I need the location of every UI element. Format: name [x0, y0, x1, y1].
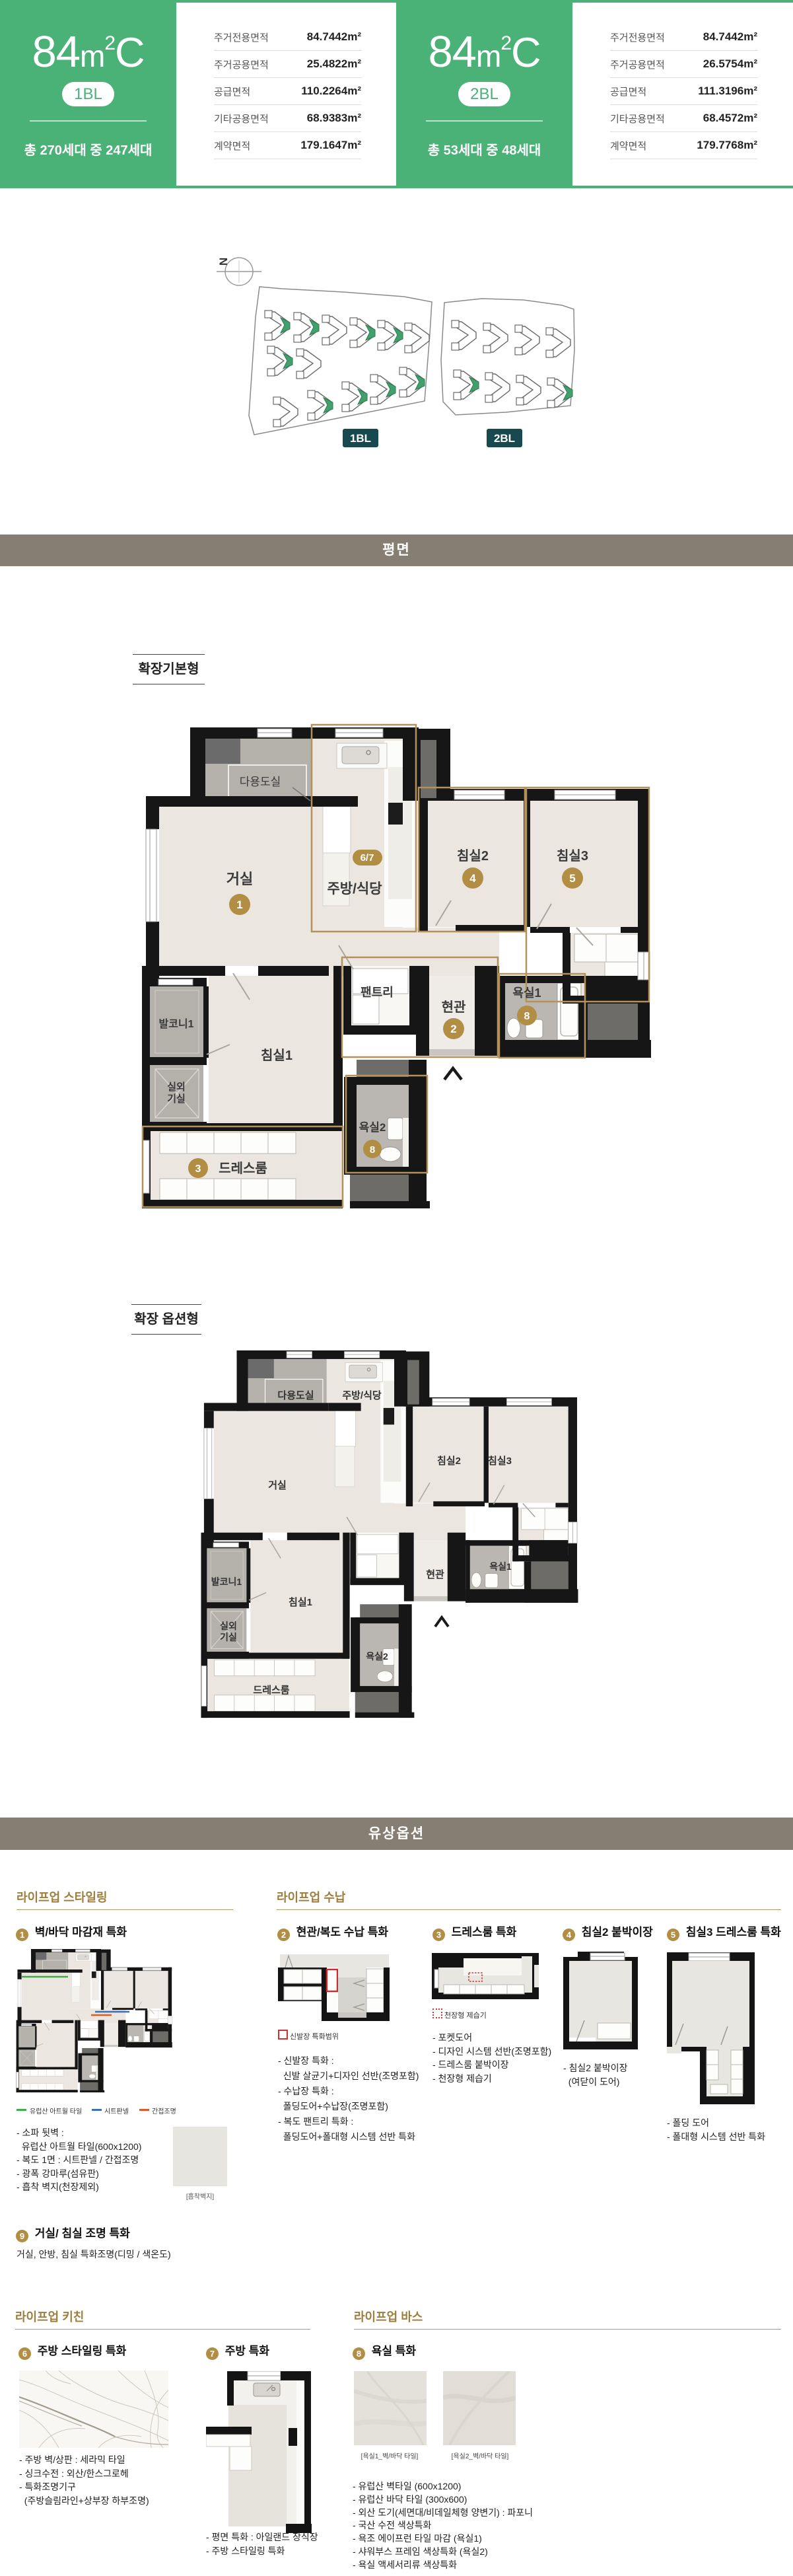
svg-text:5: 5 [569, 872, 575, 885]
svg-text:6/7: 6/7 [361, 852, 374, 864]
svg-text:침실3: 침실3 [557, 848, 588, 864]
svg-text:현관: 현관 [442, 1000, 466, 1015]
svg-text:3: 3 [195, 1163, 201, 1175]
svg-text:침실3: 침실3 [488, 1455, 512, 1467]
svg-text:현관: 현관 [426, 1569, 444, 1580]
svg-text:다용도실: 다용도실 [277, 1390, 314, 1401]
svg-text:1: 1 [236, 899, 242, 911]
svg-text:실외: 실외 [167, 1081, 186, 1093]
svg-text:기실: 기실 [220, 1632, 237, 1642]
svg-text:주방/식당: 주방/식당 [342, 1389, 382, 1401]
svg-text:침실2: 침실2 [457, 848, 489, 864]
svg-text:욕실1: 욕실1 [489, 1561, 512, 1572]
svg-text:발코니1: 발코니1 [158, 1018, 193, 1030]
svg-text:거실: 거실 [268, 1480, 287, 1491]
svg-text:드레스룸: 드레스룸 [253, 1685, 289, 1696]
svg-text:1BL: 1BL [350, 432, 371, 445]
svg-text:침실1: 침실1 [289, 1597, 312, 1608]
svg-text:욕실1: 욕실1 [512, 986, 541, 1000]
svg-text:욕실2: 욕실2 [359, 1121, 386, 1134]
svg-text:발코니1: 발코니1 [211, 1576, 242, 1587]
svg-text:8: 8 [370, 1144, 375, 1156]
svg-text:드레스룸: 드레스룸 [219, 1161, 267, 1176]
svg-text:기실: 기실 [167, 1093, 186, 1105]
svg-text:팬트리: 팬트리 [361, 986, 394, 999]
svg-text:침실1: 침실1 [261, 1048, 293, 1063]
svg-text:실외: 실외 [220, 1621, 237, 1631]
svg-text:4: 4 [469, 872, 476, 885]
svg-text:다용도실: 다용도실 [240, 776, 281, 788]
svg-text:2BL: 2BL [494, 432, 515, 445]
svg-text:거실: 거실 [226, 871, 253, 887]
svg-text:욕실2: 욕실2 [366, 1651, 388, 1662]
svg-text:2: 2 [450, 1023, 456, 1035]
svg-text:주방/식당: 주방/식당 [327, 881, 382, 897]
svg-text:침실2: 침실2 [437, 1455, 461, 1467]
svg-text:N: N [217, 258, 230, 266]
svg-text:8: 8 [524, 1011, 530, 1022]
